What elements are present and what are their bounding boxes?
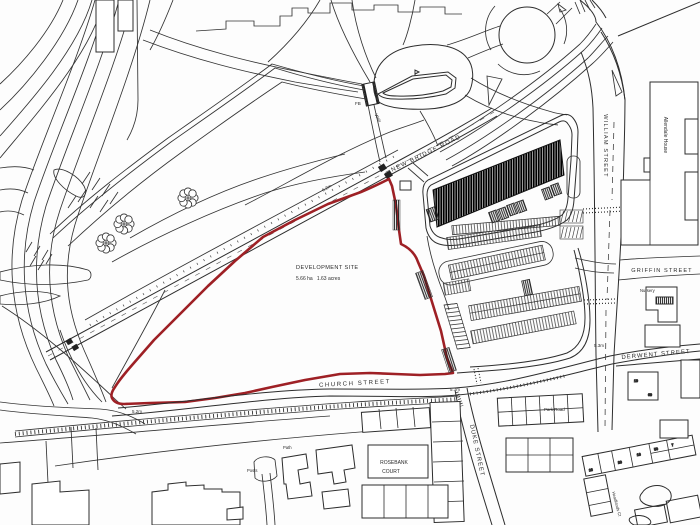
svg-text:20: 20 [618,460,623,465]
svg-text:Posts: Posts [247,468,257,473]
svg-text:Path: Path [283,445,292,450]
svg-text:Park Road: Park Road [544,407,565,412]
svg-text:WILLIAM STREET: WILLIAM STREET [602,114,608,177]
svg-text:COURT: COURT [382,469,400,475]
svg-text:DEVELOPMENT SITE: DEVELOPMENT SITE [296,265,359,271]
svg-text:Allendale House: Allendale House [662,117,668,154]
svg-text:ROSEBANK: ROSEBANK [380,460,408,466]
svg-text:5.3m: 5.3m [594,343,604,348]
svg-text:50: 50 [654,447,659,452]
svg-text:19: 19 [634,379,638,383]
svg-text:5.2m: 5.2m [132,409,142,414]
svg-text:Nursery: Nursery [640,288,656,293]
svg-text:5.66 ha 1.63 acres: 5.66 ha 1.63 acres [296,276,341,282]
svg-text:FB: FB [355,101,361,106]
svg-text:16: 16 [589,468,594,473]
svg-text:13: 13 [636,452,641,457]
svg-text:GRIFFIN STREET: GRIFFIN STREET [631,268,692,274]
svg-text:69: 69 [648,393,652,397]
